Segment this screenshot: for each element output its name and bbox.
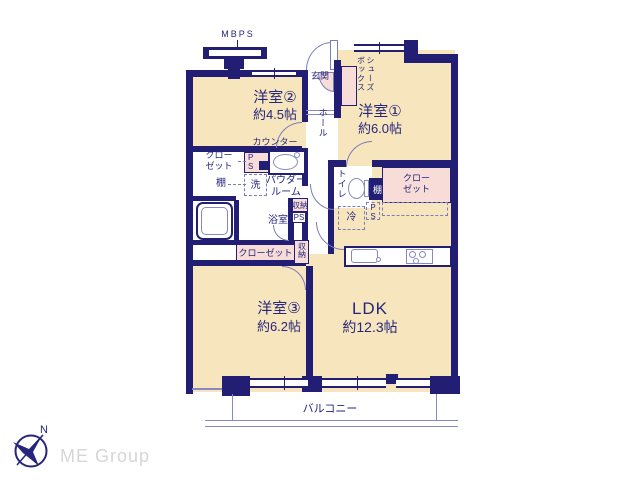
compass-n: N xyxy=(40,424,48,436)
closet-bottom-label: クローゼット xyxy=(236,248,295,259)
entrance-label: 玄関 xyxy=(306,71,334,82)
ps-kitchen-label: P S xyxy=(366,203,380,222)
window-room2-tick xyxy=(274,68,275,79)
stove-burner-2 xyxy=(419,251,426,258)
room2-size: 約4.5帖 xyxy=(235,107,315,122)
window-ldk-balcony-tick xyxy=(357,376,358,390)
room1-size: 約6.0帖 xyxy=(339,121,421,136)
mbps-leader-line xyxy=(237,40,238,48)
wall-room1-bottom-b xyxy=(372,160,458,167)
room1-name: 洋室① xyxy=(339,103,421,121)
bath-label: 浴室 xyxy=(264,215,292,227)
closet-left-label: クロー ゼット xyxy=(200,150,238,171)
wall-left xyxy=(186,70,193,394)
balcony-label: バルコニー xyxy=(300,403,360,416)
window-room3-balcony xyxy=(250,378,308,388)
shoe-box xyxy=(341,66,357,106)
balcony-side-left xyxy=(232,394,233,421)
ps-box-pipe xyxy=(259,161,268,170)
balcony-rail-2 xyxy=(205,426,458,427)
room3-size: 約6.2帖 xyxy=(237,319,321,334)
toilet-label: トイレ xyxy=(336,169,347,207)
mbps-stem2 xyxy=(228,67,240,79)
stove-burner-1 xyxy=(409,251,416,258)
shoe-box-label: シューズ ボックス xyxy=(356,56,375,108)
storage-bath-label: 収納 xyxy=(292,201,308,210)
wall-top-room1 xyxy=(404,54,458,63)
storage-vertical-label: 収納 xyxy=(297,242,306,264)
kitchen-tap xyxy=(376,257,381,262)
hall-label: ホール xyxy=(317,108,328,150)
ps-powder-label: P S xyxy=(248,153,260,172)
stove-burner-3 xyxy=(413,258,419,264)
window-room1-tick xyxy=(379,42,380,54)
ps-bath-label: PS xyxy=(292,213,306,222)
hanging-shelf-space xyxy=(382,202,448,216)
kitchen-sink xyxy=(351,249,378,263)
compass-icon: N xyxy=(10,420,54,474)
closet-right-label: クロー ゼット xyxy=(382,173,451,194)
balcony-rail-1 xyxy=(205,420,458,421)
balcony-side-right xyxy=(436,394,437,421)
wall-block-bottom-right xyxy=(430,376,460,394)
shelf-toilet-label: 棚 xyxy=(369,178,382,200)
fridge-label: 冷 xyxy=(338,212,365,224)
edge-bottom-left xyxy=(192,388,222,390)
window-ldk-balcony-2 xyxy=(396,378,430,388)
ldk-name: LDK xyxy=(328,299,412,319)
brand-text: ME Group xyxy=(60,446,150,467)
ldk-size: 約12.3帖 xyxy=(328,319,412,336)
room3-name: 洋室③ xyxy=(237,300,321,318)
bathtub-inner xyxy=(201,207,228,235)
closet-leader-dash xyxy=(238,161,246,162)
mbps-label: MBPS xyxy=(214,29,262,40)
powder-room-label: パウダー ルーム xyxy=(260,175,312,199)
wall-right xyxy=(451,54,458,380)
entrance-door-arc xyxy=(306,42,332,70)
window-room3-balcony-tick xyxy=(284,376,285,390)
toilet-bowl xyxy=(348,178,365,199)
wall-bath-top xyxy=(192,196,236,201)
mbps-bar-inset xyxy=(209,50,261,56)
room2-name: 洋室② xyxy=(235,89,315,107)
floor-plan: MBPS 玄関 シューズ ボックス 洋室② 約4.5帖 洋室① 約6.0帖 ホー… xyxy=(0,0,640,480)
shelf-left-label: 棚 xyxy=(216,178,229,190)
window-ldk-balcony-1 xyxy=(322,378,386,388)
wall-bath-divider xyxy=(234,200,239,242)
wall-block-bottom-left xyxy=(222,376,250,396)
wall-room1-bottom-a xyxy=(328,160,346,167)
counter-label: カウンター xyxy=(250,137,300,148)
washbasin-tap xyxy=(294,152,300,158)
